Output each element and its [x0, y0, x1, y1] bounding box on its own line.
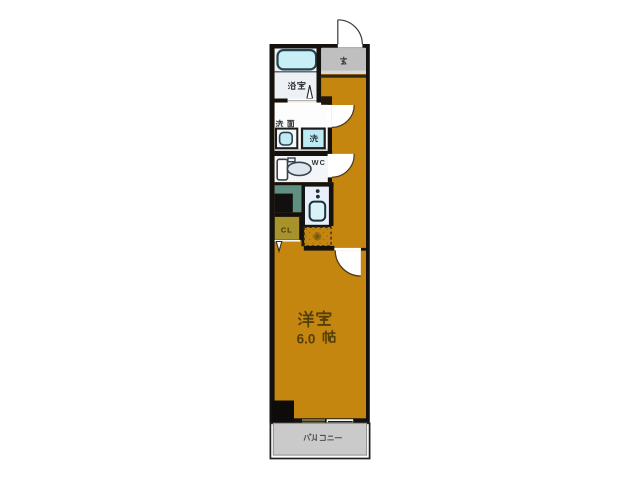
svg-text:6.0: 6.0 [297, 331, 316, 346]
svg-text:CL: CL [281, 225, 293, 234]
svg-text:WC: WC [312, 158, 326, 167]
